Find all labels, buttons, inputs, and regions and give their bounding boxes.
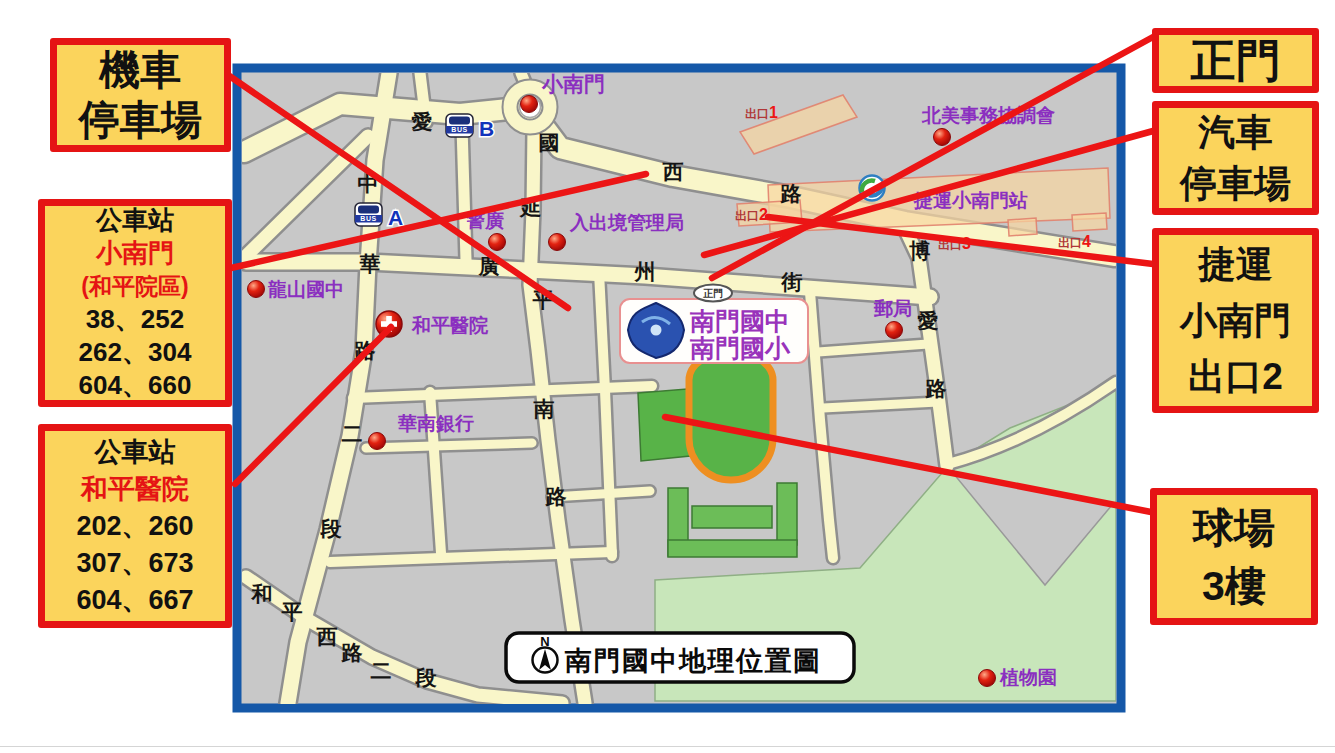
street-label-zhonghua-road: 華 bbox=[360, 252, 381, 275]
map-title: 南門國中地理位置圖 bbox=[564, 646, 822, 676]
callout-line: 小南門 bbox=[1159, 293, 1312, 349]
callout-motorcycle-parking: 機車 停車場 bbox=[50, 38, 231, 152]
red-dot-marker bbox=[489, 234, 506, 251]
landmark-label: 小南門 bbox=[541, 72, 605, 95]
callout-car-parking: 汽車 停車場 bbox=[1152, 101, 1319, 215]
callout-mrt-exit2: 捷運 小南門 出口2 bbox=[1152, 228, 1319, 413]
school-sign-line2: 南門國小 bbox=[689, 334, 791, 362]
street-label-hepingxi-road: 段 bbox=[415, 666, 438, 689]
school-sign-line1: 南門國中 bbox=[689, 307, 790, 335]
road-fill bbox=[366, 443, 532, 448]
street-label-yanping-south-road: 路 bbox=[545, 485, 567, 508]
street-label-zhonghua-road: 段 bbox=[320, 517, 343, 540]
red-dot-marker bbox=[549, 234, 566, 251]
street-label-aiguo-west-road: 愛 bbox=[412, 110, 433, 133]
main-gate-marker: 正門 bbox=[694, 285, 732, 302]
bus-stop-letter: B bbox=[479, 117, 494, 140]
street-label-hepingxi-road: 西 bbox=[316, 625, 338, 648]
street-label-boai-road: 路 bbox=[925, 377, 947, 400]
landmark-label: 入出境管理局 bbox=[569, 212, 684, 233]
street-label-hepingxi-road: 和 bbox=[251, 582, 273, 605]
landmark-label: 北美事務協調會 bbox=[921, 105, 1055, 126]
bus-icon-word: BUS bbox=[360, 215, 376, 222]
sports-field bbox=[638, 389, 690, 461]
callout-bus-stop-heping-hospital: 公車站 和平醫院 202、260 307、673 604、667 bbox=[38, 424, 232, 628]
callout-line: 捷運 bbox=[1159, 237, 1312, 293]
bus-stop-icon-B: BUSB bbox=[446, 114, 494, 140]
bus-stop-name-sub: (和平院區) bbox=[45, 270, 225, 303]
school-logo-center bbox=[651, 325, 662, 336]
bus-routes: 38、252 bbox=[45, 303, 225, 336]
street-label-aiguo-west-road: 西 bbox=[662, 160, 684, 183]
bus-stop-letter: A bbox=[388, 206, 403, 229]
mrt-exit-label: 出口1 bbox=[745, 104, 778, 121]
street-label-yanping-south-road: 南 bbox=[533, 397, 555, 420]
road-fill bbox=[823, 402, 938, 408]
landmark-label: 龍山國中 bbox=[267, 279, 344, 300]
mrt-exit-label: 出口4 bbox=[1058, 233, 1091, 250]
street-label-guangzhou-street: 州 bbox=[634, 260, 656, 283]
callout-line: 3樓 bbox=[1157, 557, 1311, 615]
red-dot-marker bbox=[369, 433, 386, 450]
callout-line: 機車 bbox=[57, 45, 224, 95]
red-dot-marker bbox=[886, 322, 903, 339]
callout-line: 正門 bbox=[1159, 36, 1312, 86]
landmark-label: 植物園 bbox=[999, 667, 1057, 688]
bus-stop-name: 小南門 bbox=[45, 237, 225, 270]
bus-routes: 202、260 bbox=[45, 508, 225, 545]
red-dot-marker bbox=[934, 129, 951, 146]
landmark-label: 郵局 bbox=[873, 298, 912, 319]
bus-stop-icon-A: BUSA bbox=[355, 203, 403, 229]
bus-routes: 604、667 bbox=[45, 582, 225, 619]
street-label-aiguo-west-road: 路 bbox=[780, 182, 802, 205]
callout-line: 球場 bbox=[1157, 499, 1311, 557]
street-label-hepingxi-road: 路 bbox=[341, 641, 363, 664]
street-label-hepingxi-road: 平 bbox=[282, 600, 303, 623]
red-dot-marker bbox=[521, 96, 538, 113]
school-sign: 南門國中 南門國小 bbox=[620, 299, 808, 363]
running-track bbox=[689, 352, 773, 480]
bus-routes: 604、660 bbox=[45, 369, 225, 402]
callout-line: 出口2 bbox=[1159, 349, 1312, 405]
road-fill bbox=[552, 491, 650, 497]
callout-main-gate: 正門 bbox=[1152, 28, 1319, 93]
callout-ball-court: 球場 3樓 bbox=[1150, 488, 1318, 625]
red-dot-marker bbox=[979, 670, 996, 687]
street-label-guangzhou-street: 街 bbox=[781, 270, 803, 293]
street-label-hepingxi-road: 二 bbox=[371, 659, 392, 682]
bus-stop-header: 公車站 bbox=[45, 434, 225, 471]
landmark-label: 華南銀行 bbox=[397, 413, 474, 434]
bus-icon-word: BUS bbox=[451, 126, 467, 133]
location-map-slide: 愛國西路中華路二段延平南路廣州街博愛路和平西路二段 BUSABUSB 小南門警廣… bbox=[0, 0, 1335, 753]
street-label-zhonghua-road: 二 bbox=[342, 422, 363, 445]
callout-line: 停車場 bbox=[1159, 158, 1312, 209]
callout-bus-stop-xiaonanmen: 公車站 小南門 (和平院區) 38、252 262、304 604、660 bbox=[38, 199, 232, 407]
callout-line: 停車場 bbox=[57, 95, 224, 145]
bus-stop-name: 和平醫院 bbox=[45, 471, 225, 508]
street-label-boai-road: 博 bbox=[909, 239, 931, 262]
bus-routes: 262、304 bbox=[45, 336, 225, 369]
red-dot-marker bbox=[248, 281, 265, 298]
bus-routes: 307、673 bbox=[45, 545, 225, 582]
street-label-boai-road: 愛 bbox=[918, 309, 939, 332]
mrt-exit-label: 出口2 bbox=[735, 206, 768, 223]
main-gate-label: 正門 bbox=[703, 288, 723, 299]
landmark-label: 和平醫院 bbox=[411, 315, 489, 336]
map-title-box: N 南門國中地理位置圖 bbox=[506, 633, 854, 682]
callout-line: 汽車 bbox=[1159, 107, 1312, 158]
bus-stop-header: 公車站 bbox=[45, 204, 225, 237]
street-label-aiguo-west-road: 國 bbox=[539, 131, 560, 154]
slide-bottom-edge bbox=[0, 746, 1335, 747]
